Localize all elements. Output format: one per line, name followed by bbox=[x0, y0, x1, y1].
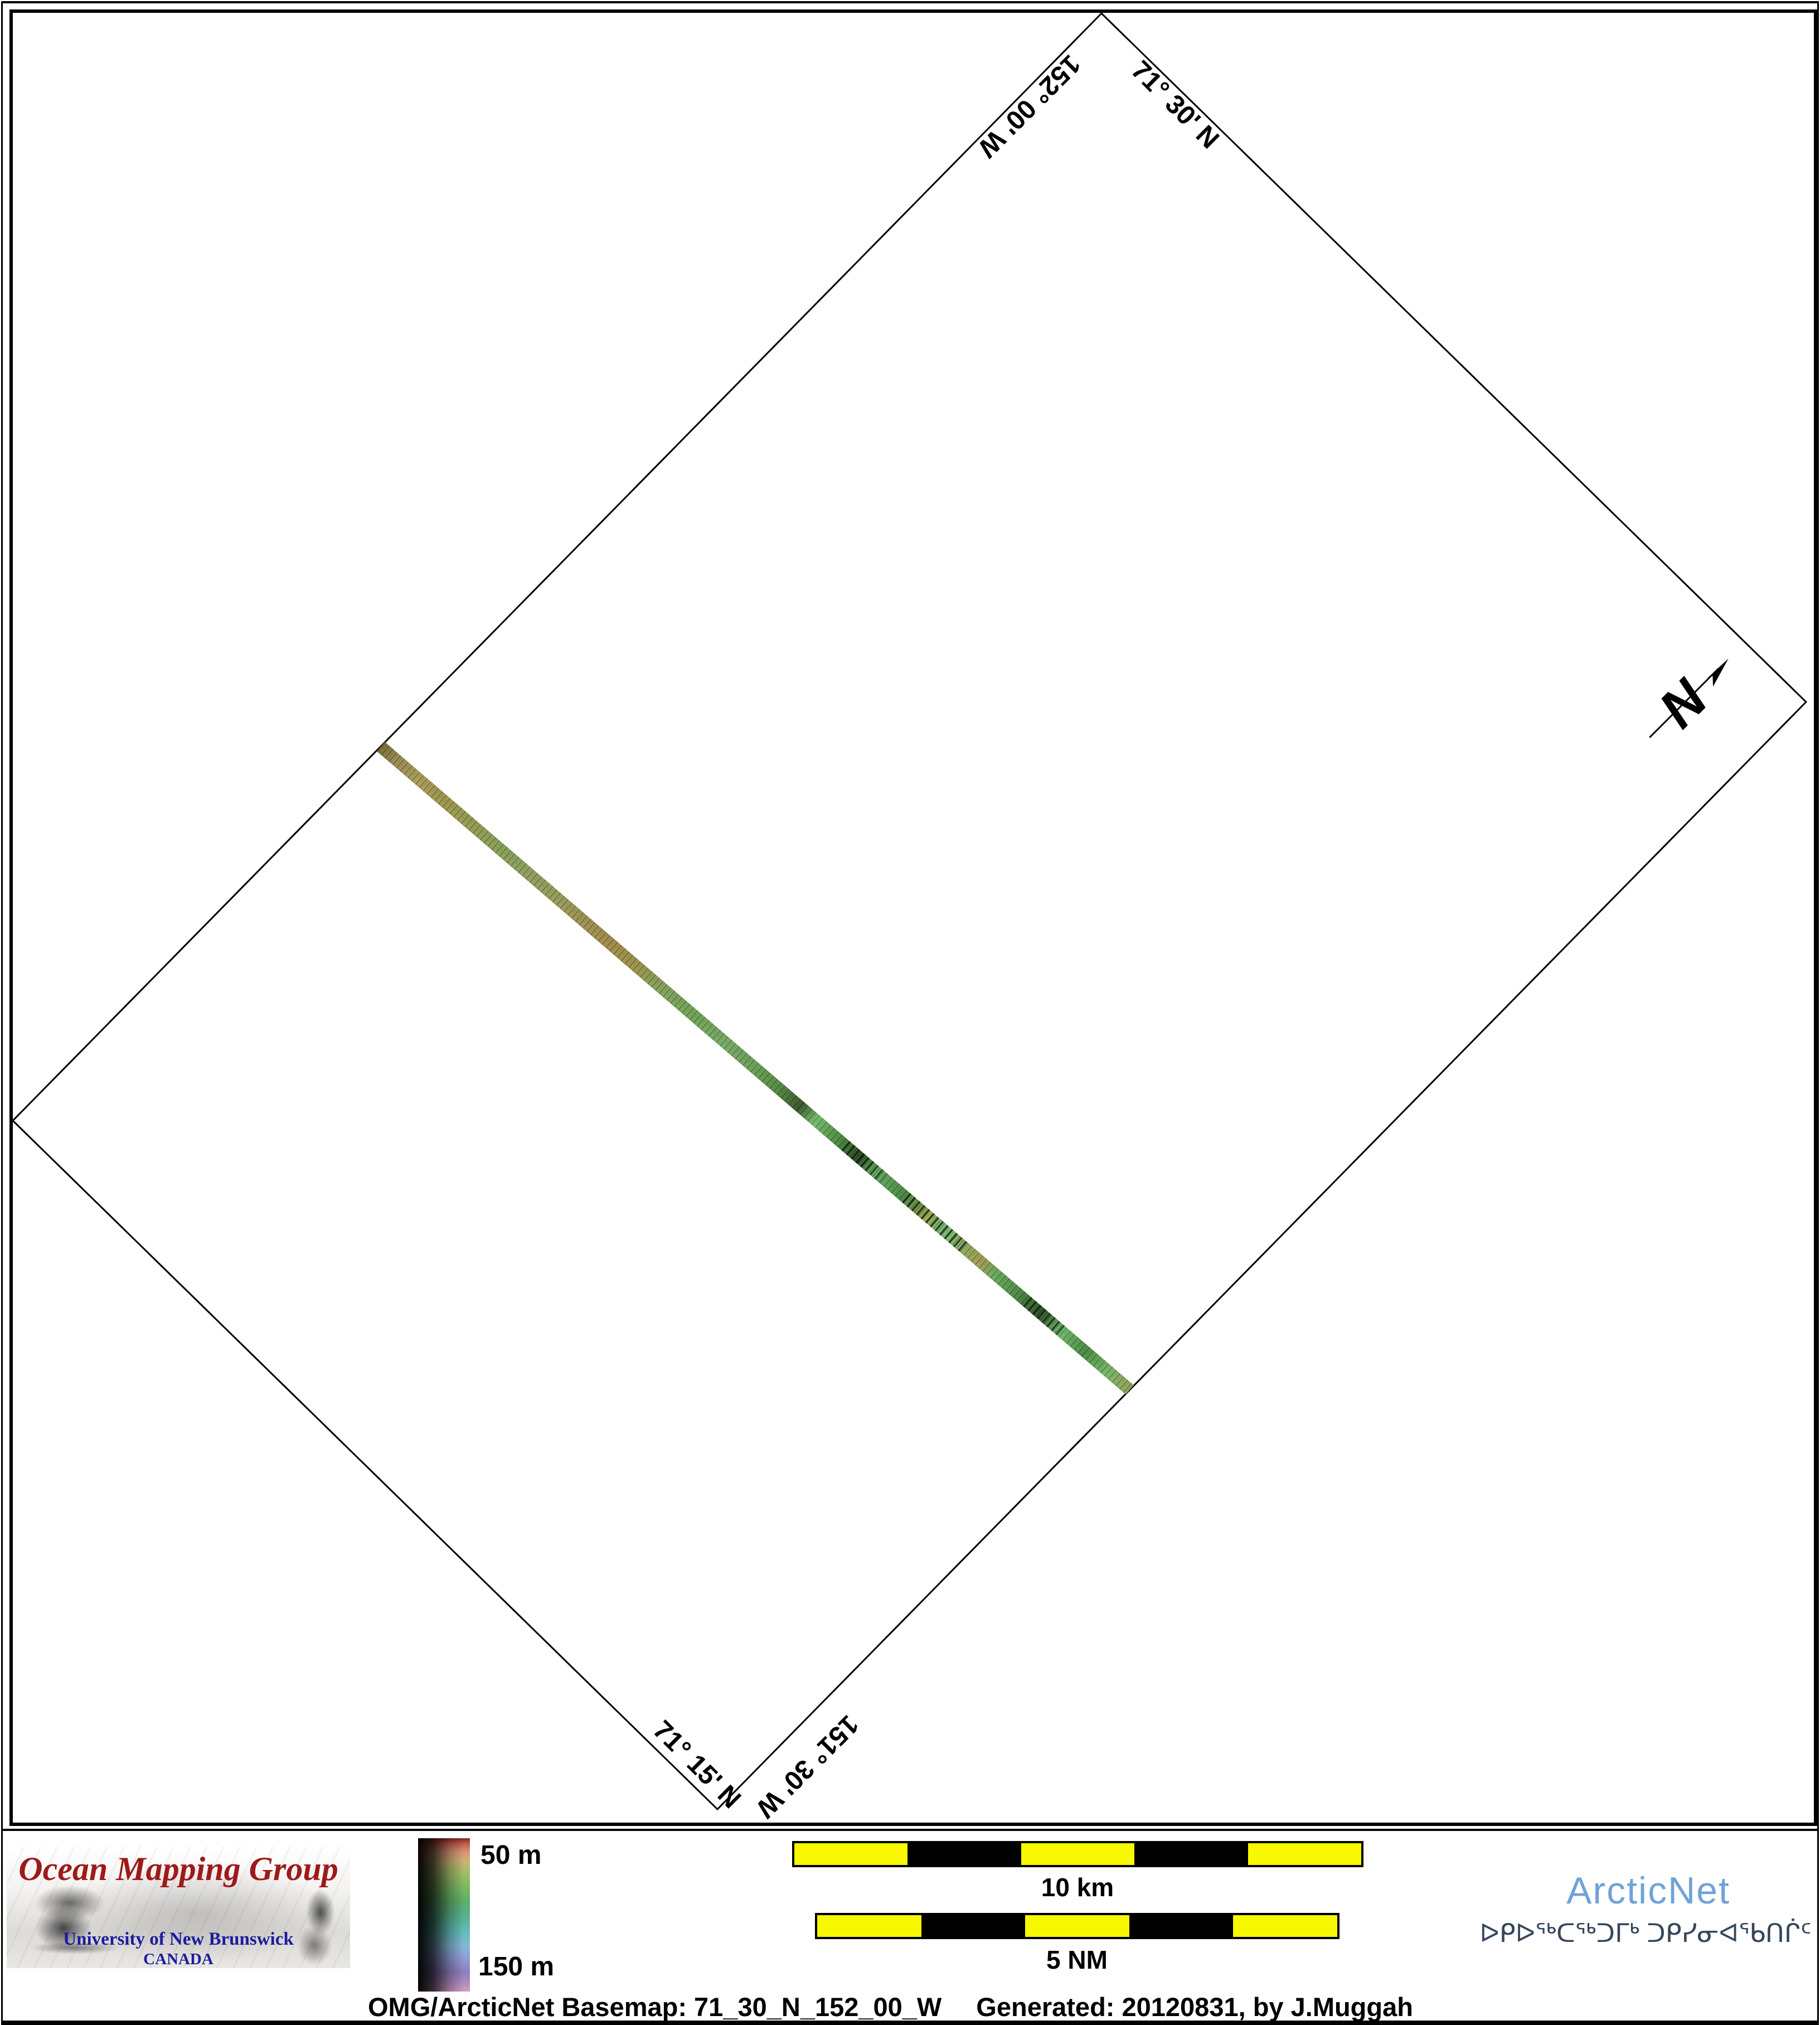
map-canvas: N bbox=[0, 0, 1820, 2025]
scalebar-segment bbox=[1129, 1915, 1234, 1937]
scalebar-segment bbox=[1134, 1843, 1248, 1865]
sheet-caption: OMG/ArcticNet Basemap: 71_30_N_152_00_W … bbox=[368, 1992, 1413, 2022]
scalebar-segment bbox=[921, 1915, 1026, 1937]
scalebar-segment bbox=[1021, 1843, 1134, 1865]
scalebar-km bbox=[792, 1841, 1363, 1867]
multibeam-swath bbox=[377, 742, 1134, 1394]
omg-logo-title: Ocean Mapping Group bbox=[7, 1850, 350, 1888]
footer-separator bbox=[3, 1829, 1817, 1831]
omg-logo-country: CANADA bbox=[7, 1950, 350, 1968]
caption-generated: Generated: 20120831, by J.Muggah bbox=[976, 1992, 1413, 2022]
caption-basemap-id: OMG/ArcticNet Basemap: 71_30_N_152_00_W bbox=[368, 1992, 941, 2022]
scalebar-segment bbox=[907, 1843, 1021, 1865]
colorbar-max-label: 150 m bbox=[478, 1951, 554, 1982]
scalebar-segment bbox=[817, 1915, 921, 1937]
basemap-sheet: N 152° 00' W 71° 30' N 71° 15' N 151° 30… bbox=[0, 0, 1820, 2025]
scalebar-nm bbox=[815, 1913, 1339, 1939]
scalebar-segment bbox=[1248, 1843, 1361, 1865]
north-arrow-head bbox=[1706, 658, 1735, 687]
graticule-diamond bbox=[13, 13, 1806, 1809]
scalebar-km-label: 10 km bbox=[1041, 1872, 1114, 1902]
scalebar-segment bbox=[794, 1843, 907, 1865]
depth-colorbar bbox=[418, 1838, 470, 1992]
scalebar-segment bbox=[1025, 1915, 1129, 1937]
scalebar-nm-label: 5 NM bbox=[1046, 1945, 1108, 1975]
omg-logo: Ocean Mapping Group University of New Br… bbox=[7, 1847, 350, 1968]
scalebar-segment bbox=[1233, 1915, 1337, 1937]
arcticnet-logo: ArcticNet bbox=[1481, 1869, 1816, 1912]
north-arrow: N bbox=[1628, 637, 1750, 759]
arcticnet-inuktitut-text: ᐅᑭᐅᖅᑕᖅᑐᒥᒃ ᑐᑭᓯᓂᐊᖃᑎᒌᑦ bbox=[1474, 1918, 1817, 1948]
colorbar-min-label: 50 m bbox=[481, 1840, 541, 1871]
omg-logo-university: University of New Brunswick bbox=[7, 1929, 350, 1950]
